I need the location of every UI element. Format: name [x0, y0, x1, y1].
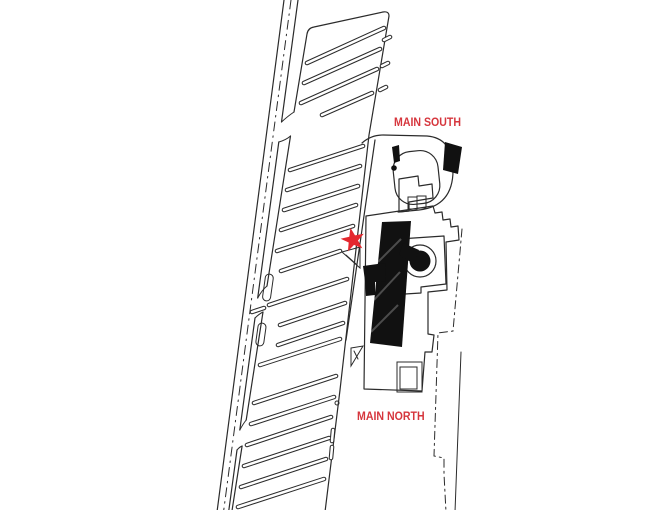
black-sign-block [443, 142, 462, 174]
property-boundary [434, 229, 462, 510]
building-footprint [363, 176, 459, 392]
label-main-south: MAIN SOUTH [394, 118, 461, 129]
site-map: MAIN SOUTH MAIN NORTH [0, 0, 672, 510]
exclamation-marker-icon [391, 145, 400, 171]
label-main-north: MAIN NORTH [357, 412, 425, 423]
site-map-drawing [0, 0, 672, 510]
